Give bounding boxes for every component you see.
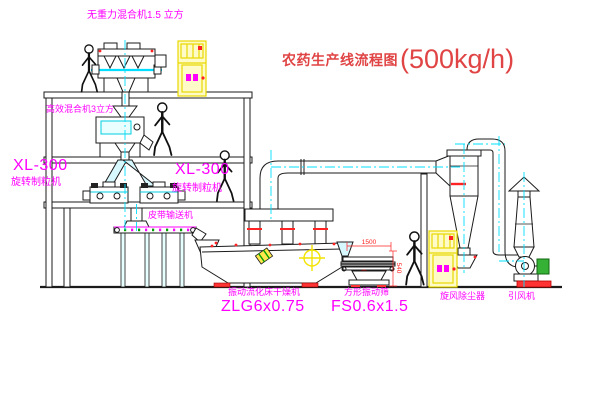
label-granulator-left-model: XL-300 <box>13 158 68 174</box>
label-fan: 引风机 <box>508 292 535 301</box>
label-granulator-center-name: 旋转制粒机 <box>172 184 222 194</box>
title-text: 农药生产线流程图 <box>282 50 398 70</box>
diagram-title: 农药生产线流程图 (500kg/h) <box>282 44 514 75</box>
label-granulator-center-model: XL-300 <box>175 162 230 178</box>
fluid-bed-dryer-drawing <box>200 209 342 287</box>
label-dryer-model: ZLG6x0.75 <box>221 299 305 315</box>
title-capacity: (500kg/h) <box>400 44 514 75</box>
belt-conveyor-drawing <box>114 227 196 287</box>
high-efficiency-mixer-drawing <box>96 106 153 160</box>
dimension-length-label: 1500 <box>362 239 377 246</box>
fan-motor-icon <box>534 259 549 274</box>
vibrating-screen-drawing: 1500 540 <box>337 239 402 287</box>
label-belt-conveyor: 皮带输送机 <box>148 211 193 220</box>
worker-figure-mid <box>154 103 171 155</box>
label-screen-name: 方形振动筛 <box>344 288 389 297</box>
label-granulator-left-name: 旋转制粒机 <box>11 178 61 188</box>
label-high-efficiency-mixer: 高效混合机3立方 <box>46 105 114 114</box>
flow-diagram-canvas: 1500 540 <box>0 0 600 403</box>
elevator-cabinet-right <box>429 231 457 287</box>
granulator-left-drawing <box>83 182 128 203</box>
label-dryer-name: 振动流化床干燥机 <box>228 288 300 297</box>
dimension-height-label: 540 <box>395 263 402 274</box>
label-screen-model: FS0.6x1.5 <box>331 299 408 315</box>
elevator-cabinet-top <box>178 41 206 96</box>
label-cyclone: 旋风除尘器 <box>440 292 485 301</box>
stack-and-fan-drawing <box>509 177 551 287</box>
label-gravityless-mixer: 无重力混合机1.5 立方 <box>87 11 184 21</box>
